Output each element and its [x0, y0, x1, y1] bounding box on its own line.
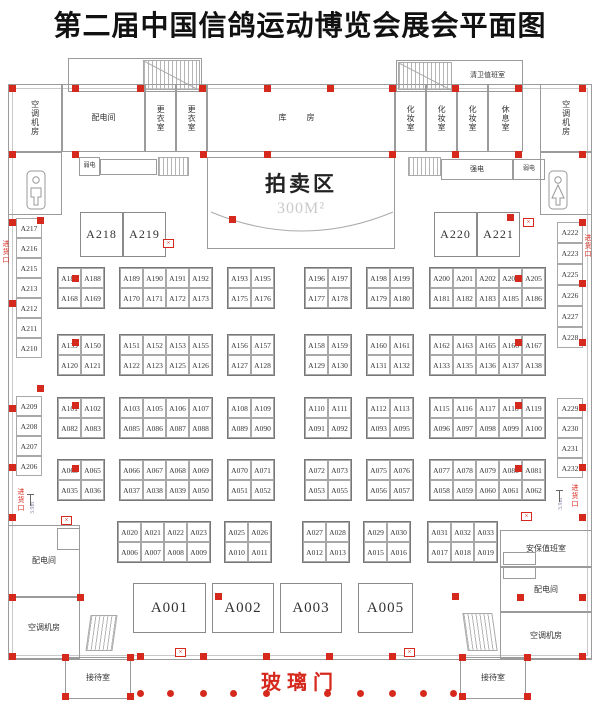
auction-arc: [208, 206, 396, 246]
booth-cell: A052: [251, 480, 274, 500]
booth-cell: A070: [228, 460, 251, 480]
booth-cell: A215: [16, 258, 42, 278]
booth-cell: A073: [328, 460, 351, 480]
column-marker: [327, 85, 334, 92]
booth-cell: A158: [305, 335, 328, 355]
entrance-dot: [263, 690, 270, 697]
column-marker: [515, 85, 522, 92]
booth-cell: A109: [251, 398, 274, 418]
booth-cell: A195: [251, 268, 274, 288]
room-ac-bottom-right: 空调机房: [500, 612, 592, 659]
booth-cell: A117: [476, 398, 499, 418]
booth-cell: A120: [58, 355, 81, 375]
booth-cell: A199: [390, 268, 413, 288]
booth-cell: A178: [328, 288, 351, 308]
auction-label: 拍卖区: [208, 172, 394, 196]
entrance-dot: [420, 690, 427, 697]
booth-cell: A007: [141, 542, 164, 562]
column-marker: [72, 85, 79, 92]
room-makeup-3: 化妆室: [457, 84, 488, 152]
booth-cell: A027: [303, 522, 326, 542]
room-reception-right: 接待室: [460, 657, 526, 699]
booth-cell: A182: [453, 288, 476, 308]
booth-cell: A207: [16, 436, 42, 456]
entrance-dot: [167, 690, 174, 697]
booth-cell: A121: [81, 355, 104, 375]
column-marker: [72, 275, 79, 282]
booth-cell: A131: [367, 355, 390, 375]
booth-cell: A116: [453, 398, 476, 418]
booth-cell: A198: [367, 268, 390, 288]
room-makeup-1: 化妆室: [395, 84, 426, 152]
column-marker: [9, 85, 16, 92]
booth-cell: A016: [387, 542, 410, 562]
booth-cell: A061: [499, 480, 522, 500]
booth-large: A219: [123, 212, 166, 257]
column-marker: [127, 654, 134, 661]
booth-cell: A077: [430, 460, 453, 480]
booth-cell: A183: [476, 288, 499, 308]
column-marker: [77, 594, 84, 601]
booth-cell: A169: [81, 288, 104, 308]
booth-cell: A097: [453, 418, 476, 438]
room-makeup-2: 化妆室: [426, 84, 457, 152]
booth-cell: A128: [251, 355, 274, 375]
duct-box-left: [100, 159, 157, 175]
booth-cell: A150: [81, 335, 104, 355]
booth-cell: A093: [367, 418, 390, 438]
booth-cell: A122: [120, 355, 143, 375]
stairs-mid-right: [408, 157, 441, 176]
booth-cell: A159: [328, 335, 351, 355]
column-marker: [9, 300, 16, 307]
room-changing-2: 更衣室: [176, 84, 207, 152]
booth-cell: A067: [143, 460, 166, 480]
booth-cell: A092: [328, 418, 351, 438]
booth-cell: A082: [58, 418, 81, 438]
booth-cell: A136: [476, 355, 499, 375]
column-marker: [62, 654, 69, 661]
booth-large: A003: [280, 583, 342, 633]
column-marker: [515, 465, 522, 472]
booth-cell: A108: [228, 398, 251, 418]
booth-cell: A017: [428, 542, 451, 562]
booth-cell: A026: [248, 522, 271, 542]
booth-cell: A171: [143, 288, 166, 308]
booth-cell: A188: [81, 268, 104, 288]
column-marker: [459, 693, 466, 700]
booth-large: A220: [434, 212, 477, 257]
booth-cell: A036: [81, 480, 104, 500]
booth-cell: A216: [16, 238, 42, 258]
booth-cell: A170: [120, 288, 143, 308]
booth-cell: A050: [189, 480, 212, 500]
column-marker: [326, 653, 333, 660]
booth-cell: A037: [120, 480, 143, 500]
column-marker: [524, 693, 531, 700]
column-marker: [263, 653, 270, 660]
page-title: 第二届中国信鸽运动博览会展会平面图: [0, 4, 600, 44]
room-power-bottom-right: 配电间: [500, 567, 592, 612]
booth-cell: A039: [166, 480, 189, 500]
booth-cell: A202: [476, 268, 499, 288]
column-marker: [389, 653, 396, 660]
booth-cell: A156: [228, 335, 251, 355]
booth-cell: A009: [187, 542, 210, 562]
booth-cell: A060: [476, 480, 499, 500]
booth-cell: A012: [303, 542, 326, 562]
column-marker: [72, 339, 79, 346]
column-marker: [579, 219, 586, 226]
goods-entrance-left-bottom: 进货口: [16, 488, 26, 512]
column-marker: [9, 219, 16, 226]
booth-cell: A099: [499, 418, 522, 438]
booth-cell: A031: [428, 522, 451, 542]
booth-cell: A193: [228, 268, 251, 288]
booth-cell: A173: [189, 288, 212, 308]
booth-cell: A163: [453, 335, 476, 355]
booth-cell: A076: [390, 460, 413, 480]
column-marker: [9, 514, 16, 521]
booth-cell: A081: [522, 460, 545, 480]
column-marker: [389, 85, 396, 92]
booth-cell: A098: [476, 418, 499, 438]
booth-cell: A023: [187, 522, 210, 542]
column-marker: [200, 151, 207, 158]
booth-cell: A211: [16, 318, 42, 338]
column-marker: [579, 594, 586, 601]
distribution-box-icon: ×: [61, 516, 72, 525]
booth-cell: A160: [367, 335, 390, 355]
column-marker: [579, 85, 586, 92]
booth-cell: A022: [164, 522, 187, 542]
booth-cell: A138: [522, 355, 545, 375]
column-marker: [9, 653, 16, 660]
goods-entrance-right-bottom: 进货口: [570, 484, 580, 508]
column-marker: [264, 151, 271, 158]
booth-cell: A167: [522, 335, 545, 355]
room-power-top: 配电间: [62, 84, 145, 152]
booth-cell: A066: [120, 460, 143, 480]
distribution-box-icon: ×: [175, 648, 186, 657]
column-marker: [9, 405, 16, 412]
room-rest: 休息室: [488, 84, 523, 152]
column-marker: [459, 654, 466, 661]
booth-cell: A180: [390, 288, 413, 308]
booth-cell: A162: [430, 335, 453, 355]
booth-cell: A079: [476, 460, 499, 480]
booth-cell: A191: [166, 268, 189, 288]
sub-room: [503, 552, 536, 565]
column-marker: [452, 593, 459, 600]
booth-cell: A087: [166, 418, 189, 438]
booth-cell: A133: [430, 355, 453, 375]
booth-cell: A190: [143, 268, 166, 288]
booth-cell: A127: [228, 355, 251, 375]
booth-cell: A125: [166, 355, 189, 375]
column-marker: [137, 85, 144, 92]
room-changing-1: 更衣室: [145, 84, 176, 152]
room-weak-elec-left: 弱电: [79, 157, 100, 176]
booth-cell: A089: [228, 418, 251, 438]
booth-cell: A006: [118, 542, 141, 562]
booth-cell: A119: [522, 398, 545, 418]
column-marker: [452, 85, 459, 92]
entrance-dot: [137, 690, 144, 697]
column-marker: [72, 402, 79, 409]
booth-cell: A102: [81, 398, 104, 418]
booth-cell: A059: [453, 480, 476, 500]
booth-cell: A105: [143, 398, 166, 418]
booth-cell: A201: [453, 268, 476, 288]
column-marker: [579, 404, 586, 411]
room-strong-elec: 强电: [441, 159, 513, 180]
room-warehouse: 库 房: [207, 84, 395, 152]
booth-cell: A226: [557, 285, 583, 306]
booth-cell: A153: [166, 335, 189, 355]
booth-cell: A071: [251, 460, 274, 480]
booth-cell: A209: [16, 396, 42, 416]
booth-cell: A095: [390, 418, 413, 438]
booth-cell: A100: [522, 418, 545, 438]
booth-cell: A186: [522, 288, 545, 308]
booth-cell: A078: [453, 460, 476, 480]
booth-cell: A205: [522, 268, 545, 288]
room-ac-top-right: 空调机房: [540, 84, 592, 152]
booth-cell: A210: [16, 338, 42, 358]
column-marker: [62, 693, 69, 700]
entrance-dot: [200, 690, 207, 697]
distribution-box-icon: ×: [523, 218, 534, 227]
booth-cell: A129: [305, 355, 328, 375]
booth-cell: A032: [451, 522, 474, 542]
male-restroom-icon: [26, 170, 46, 210]
booth-cell: A086: [143, 418, 166, 438]
booth-cell: A035: [58, 480, 81, 500]
booth-large: A001: [133, 583, 206, 633]
room-weak-elec-right: 弱电: [513, 159, 545, 180]
booth-cell: A015: [364, 542, 387, 562]
column-marker: [507, 214, 514, 221]
booth-cell: A062: [522, 480, 545, 500]
booth-cell: A179: [367, 288, 390, 308]
goods-entrance-right-top: 进货口: [583, 234, 593, 258]
column-marker: [389, 151, 396, 158]
booth-cell: A069: [189, 460, 212, 480]
booth-cell: A096: [430, 418, 453, 438]
booth-cell: A197: [328, 268, 351, 288]
stairs-mid-left: [158, 157, 189, 176]
booth-large: A218: [80, 212, 123, 257]
booth-cell: A051: [228, 480, 251, 500]
column-marker: [579, 151, 586, 158]
booth-cell: A113: [390, 398, 413, 418]
column-marker: [524, 654, 531, 661]
booth-cell: A208: [16, 416, 42, 436]
column-marker: [264, 85, 271, 92]
booth-cell: A110: [305, 398, 328, 418]
booth-cell: A103: [120, 398, 143, 418]
column-marker: [515, 339, 522, 346]
booth-cell: A055: [328, 480, 351, 500]
booth-cell: A135: [453, 355, 476, 375]
booth-cell: A091: [305, 418, 328, 438]
column-marker: [37, 217, 44, 224]
column-marker: [9, 594, 16, 601]
column-marker: [579, 464, 586, 471]
booth-cell: A018: [451, 542, 474, 562]
stairs-bottom-right: [462, 613, 497, 651]
distribution-box-icon: ×: [404, 648, 415, 657]
booth-cell: A155: [189, 335, 212, 355]
booth-cell: A065: [81, 460, 104, 480]
column-marker: [72, 151, 79, 158]
booth-cell: A115: [430, 398, 453, 418]
booth-cell: A058: [430, 480, 453, 500]
booth-cell: A200: [430, 268, 453, 288]
female-restroom-icon: [548, 170, 568, 210]
booth-cell: A107: [189, 398, 212, 418]
stairs-bottom-left: [85, 615, 117, 651]
booth-cell: A137: [499, 355, 522, 375]
booth-cell: A057: [390, 480, 413, 500]
booth-cell: A227: [557, 306, 583, 327]
distribution-box-icon: ×: [163, 239, 174, 248]
booth-cell: A111: [328, 398, 351, 418]
column-marker: [127, 693, 134, 700]
booth-cell: A161: [390, 335, 413, 355]
booth-cell: A030: [387, 522, 410, 542]
goods-entrance-left-top: 进货口: [1, 240, 11, 264]
booth-cell: A130: [328, 355, 351, 375]
auction-area: 拍卖区 300M²: [207, 157, 395, 249]
column-marker: [579, 339, 586, 346]
booth-cell: A106: [166, 398, 189, 418]
distribution-box-icon: ×: [521, 512, 532, 521]
booth-cell: A028: [326, 522, 349, 542]
booth-cell: A206: [16, 456, 42, 476]
booth-cell: A033: [474, 522, 497, 542]
booth-cell: A029: [364, 522, 387, 542]
column-marker: [229, 216, 236, 223]
column-marker: [215, 593, 222, 600]
booth-cell: A019: [474, 542, 497, 562]
room-ac-bottom-left: 空调机房: [8, 597, 80, 659]
column-marker: [199, 85, 206, 92]
column-marker: [9, 151, 16, 158]
column-marker: [137, 653, 144, 660]
booth-large: A002: [212, 583, 274, 633]
dimension-mark-right: [556, 490, 563, 501]
booth-cell: A075: [367, 460, 390, 480]
booth-cell: A196: [305, 268, 328, 288]
column-marker: [515, 151, 522, 158]
booth-cell: A151: [120, 335, 143, 355]
booth-cell: A013: [326, 542, 349, 562]
booth-cell: A085: [120, 418, 143, 438]
booth-cell: A192: [189, 268, 212, 288]
booth-cell: A021: [141, 522, 164, 542]
column-marker: [515, 275, 522, 282]
booth-cell: A177: [305, 288, 328, 308]
booth-cell: A126: [189, 355, 212, 375]
booth-cell: A088: [189, 418, 212, 438]
column-marker: [579, 514, 586, 521]
booth-cell: A189: [120, 268, 143, 288]
booth-cell: A010: [225, 542, 248, 562]
room-reception-left: 接待室: [65, 657, 131, 699]
booth-cell: A112: [367, 398, 390, 418]
booth-cell: A056: [367, 480, 390, 500]
booth-cell: A176: [251, 288, 274, 308]
booth-cell: A213: [16, 278, 42, 298]
booth-cell: A165: [476, 335, 499, 355]
booth-cell: A011: [248, 542, 271, 562]
column-marker: [579, 653, 586, 660]
entrance-dot: [324, 690, 331, 697]
booth-large: A005: [358, 583, 413, 633]
column-marker: [200, 653, 207, 660]
booth-cell: A123: [143, 355, 166, 375]
entrance-dot: [450, 690, 457, 697]
booth-cell: A223: [557, 243, 583, 264]
entrance-dot: [230, 690, 237, 697]
booth-cell: A083: [81, 418, 104, 438]
booth-cell: A068: [166, 460, 189, 480]
sub-room: [57, 528, 80, 550]
booth-cell: A132: [390, 355, 413, 375]
dimension-mark-left: [27, 494, 34, 505]
floor-plan: 第二届中国信鸽运动博览会展会平面图 清卫值班室 空调机房 配电间 更衣室 更衣室…: [0, 0, 600, 706]
column-marker: [515, 402, 522, 409]
booth-cell: A231: [557, 438, 583, 458]
column-marker: [37, 385, 44, 392]
glass-door-label: 玻璃门: [220, 666, 380, 695]
booth-cell: A008: [164, 542, 187, 562]
booth-cell: A185: [499, 288, 522, 308]
entrance-dot: [357, 690, 364, 697]
booth-cell: A181: [430, 288, 453, 308]
booth-cell: A152: [143, 335, 166, 355]
booth-cell: A020: [118, 522, 141, 542]
booth-cell: A090: [251, 418, 274, 438]
booth-cell: A172: [166, 288, 189, 308]
booth-cell: A053: [305, 480, 328, 500]
column-marker: [517, 594, 524, 601]
column-marker: [452, 151, 459, 158]
booth-cell: A038: [143, 480, 166, 500]
column-marker: [9, 464, 16, 471]
column-marker: [72, 465, 79, 472]
column-marker: [579, 280, 586, 287]
booth-cell: A025: [225, 522, 248, 542]
booth-cell: A175: [228, 288, 251, 308]
entrance-dot: [389, 690, 396, 697]
booth-cell: A072: [305, 460, 328, 480]
booth-cell: A212: [16, 298, 42, 318]
booth-cell: A230: [557, 418, 583, 438]
room-ac-top-left: 空调机房: [8, 84, 62, 152]
booth-cell: A157: [251, 335, 274, 355]
booth-cell: A168: [58, 288, 81, 308]
